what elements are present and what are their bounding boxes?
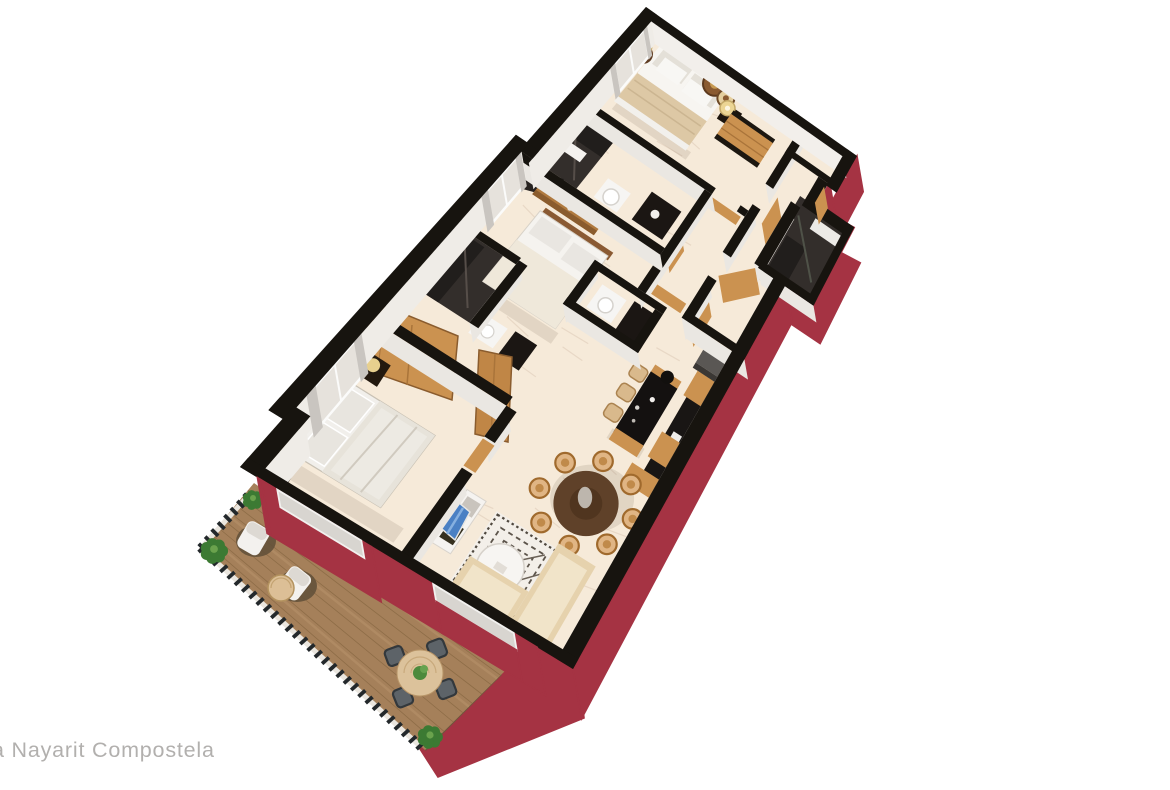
svg-text:a Nayarit Compostela: a Nayarit Compostela — [0, 738, 215, 762]
